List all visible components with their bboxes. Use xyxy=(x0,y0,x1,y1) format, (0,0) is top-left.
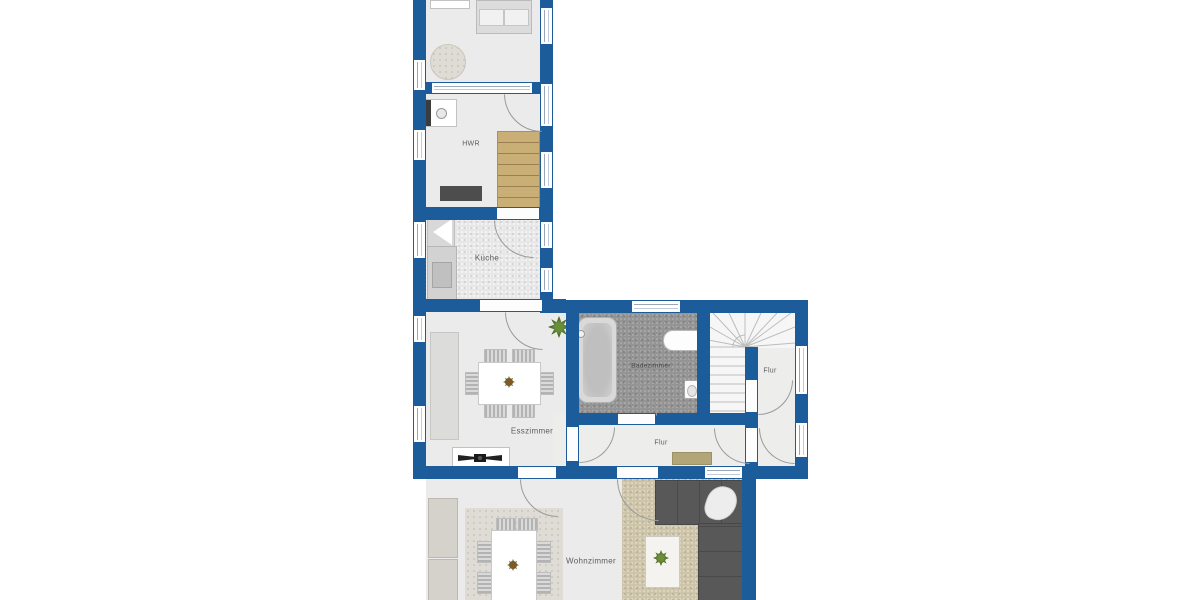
door-opening xyxy=(617,467,658,478)
bathtub xyxy=(578,317,617,403)
sofa-right xyxy=(698,523,744,600)
wall-right-section-top xyxy=(553,300,808,313)
window xyxy=(541,8,552,44)
fridge-door xyxy=(433,219,452,245)
room-label-hwr: HWR xyxy=(462,141,480,148)
fan-icon xyxy=(458,450,502,466)
esszimmer-sideboard-left xyxy=(430,332,459,440)
washing-machine xyxy=(425,99,457,127)
fridge xyxy=(427,216,455,248)
living-chair xyxy=(477,541,492,563)
window xyxy=(796,423,807,457)
table-bowl xyxy=(505,378,513,386)
window xyxy=(705,467,742,478)
round-rug xyxy=(430,44,466,80)
living-chair xyxy=(536,572,551,594)
window xyxy=(541,152,552,188)
wall-wohnzimmer-right xyxy=(742,466,756,600)
room-label-esszimmer: Esszimmer xyxy=(511,427,553,436)
window xyxy=(414,130,425,160)
window xyxy=(432,83,532,93)
bed-pillow xyxy=(504,9,529,26)
dining-chair xyxy=(484,403,507,418)
wall-flur-bottom xyxy=(553,466,808,479)
dining-chair xyxy=(512,403,535,418)
bathtub-basin xyxy=(583,323,612,397)
cabinet xyxy=(428,498,458,558)
window xyxy=(414,60,425,90)
door-opening xyxy=(746,380,757,412)
room-label-flur-upper: Flur xyxy=(763,368,776,375)
living-chair xyxy=(477,572,492,594)
window xyxy=(541,84,552,126)
washer-panel xyxy=(426,100,431,126)
room-label-badezimmer: Badezimmer xyxy=(631,363,670,370)
living-chair xyxy=(536,541,551,563)
doormat xyxy=(672,452,712,465)
door-opening xyxy=(480,300,542,311)
living-table-bowl xyxy=(509,561,517,569)
window xyxy=(414,222,425,258)
window xyxy=(632,301,680,312)
door-opening xyxy=(497,208,539,219)
toilet-bowl xyxy=(687,385,697,397)
straight-stairs xyxy=(497,131,540,209)
shower-sink xyxy=(663,330,701,351)
hwr-counter xyxy=(440,186,482,201)
wall-bad-right xyxy=(697,313,710,413)
window xyxy=(414,316,425,342)
room-label-flur-lower: Flur xyxy=(654,440,667,447)
door-opening xyxy=(567,427,578,461)
room-label-wohnzimmer: Wohnzimmer xyxy=(566,557,616,566)
washer-knob xyxy=(436,108,447,119)
kitchen-sink xyxy=(432,262,452,288)
top-room-shelf xyxy=(430,0,470,9)
coffee-table-plant xyxy=(653,550,669,566)
window xyxy=(541,222,552,248)
window xyxy=(414,406,425,442)
cabinet xyxy=(428,559,458,600)
dining-chair xyxy=(539,372,554,395)
bed-pillow xyxy=(479,9,504,26)
room-label-kueche: Küche xyxy=(475,254,499,263)
window xyxy=(541,268,552,292)
window xyxy=(796,346,807,394)
floor-plan: HWR Küche Esszimmer Badezimmer Flur Flur… xyxy=(0,0,1200,600)
door-opening xyxy=(518,467,556,478)
